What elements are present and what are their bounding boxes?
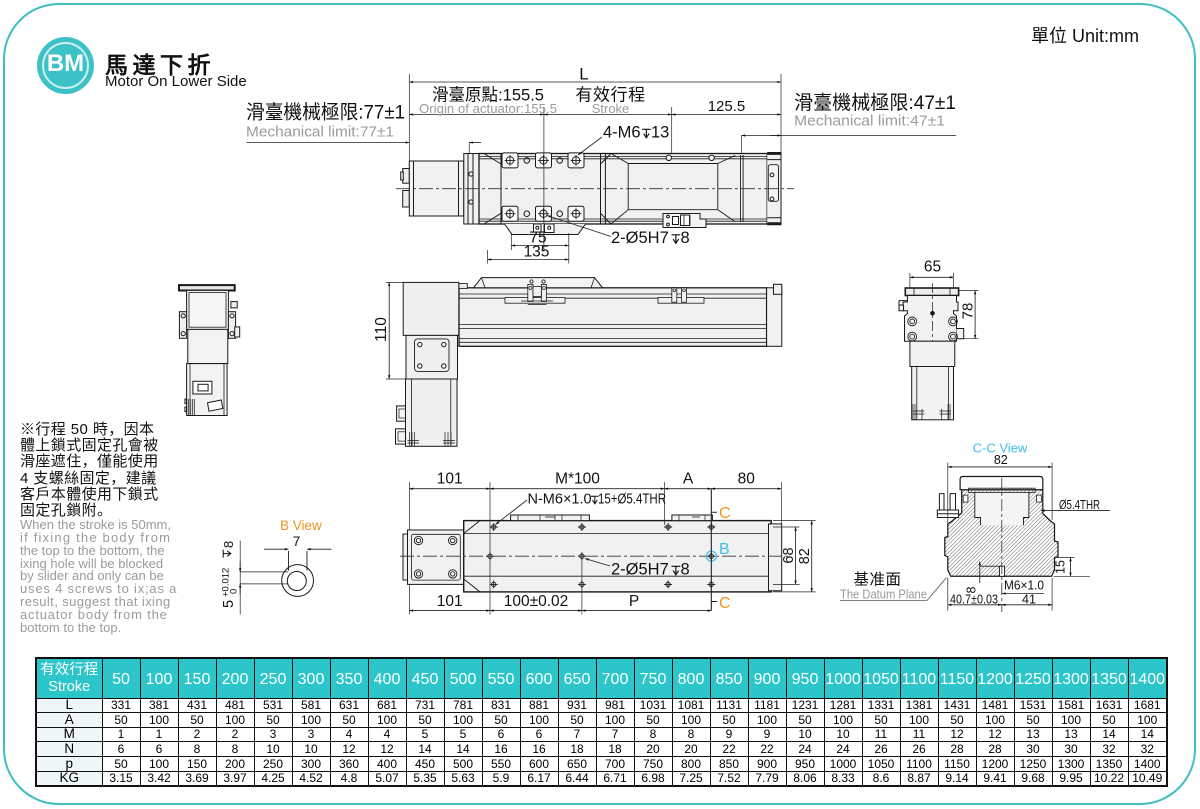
svg-text:B View: B View xyxy=(280,518,322,533)
svg-text:2-Ø5H7: 2-Ø5H7 xyxy=(611,561,669,579)
svg-text:2-Ø5H7: 2-Ø5H7 xyxy=(611,229,669,247)
svg-text:65: 65 xyxy=(924,259,941,276)
svg-text:4-M6: 4-M6 xyxy=(603,124,641,142)
svg-text:100±0.02: 100±0.02 xyxy=(504,593,569,610)
svg-text:The Datum Plane: The Datum Plane xyxy=(840,588,927,602)
svg-text:7: 7 xyxy=(293,534,301,549)
svg-text:13: 13 xyxy=(651,124,669,142)
svg-text:8: 8 xyxy=(221,541,236,548)
svg-text:82: 82 xyxy=(994,453,1008,467)
svg-text:0: 0 xyxy=(229,589,240,594)
svg-text:15: 15 xyxy=(1054,560,1068,574)
svg-text:N-M6×1.0: N-M6×1.0 xyxy=(528,492,592,508)
svg-text:Mechanical limit:77±1: Mechanical limit:77±1 xyxy=(246,125,394,141)
svg-text:5: 5 xyxy=(221,600,237,608)
svg-text:82: 82 xyxy=(797,548,813,564)
svg-text:L: L xyxy=(579,65,588,84)
svg-text:15+Ø5.4THR: 15+Ø5.4THR xyxy=(598,492,666,508)
svg-text:101: 101 xyxy=(437,593,463,610)
svg-text:C: C xyxy=(719,595,731,612)
svg-text:80: 80 xyxy=(738,471,756,488)
svg-text:Stroke: Stroke xyxy=(592,101,630,116)
svg-text:M6×1.0: M6×1.0 xyxy=(1004,579,1044,593)
svg-text:滑臺機械極限:77±1: 滑臺機械極限:77±1 xyxy=(246,102,405,124)
svg-text:8: 8 xyxy=(681,561,690,579)
svg-text:P: P xyxy=(629,593,639,610)
svg-text:135: 135 xyxy=(524,244,550,261)
svg-text:40.7±0.03: 40.7±0.03 xyxy=(950,592,998,606)
svg-text:125.5: 125.5 xyxy=(708,98,746,115)
svg-text:A: A xyxy=(683,471,694,488)
svg-text:41: 41 xyxy=(1022,592,1036,606)
svg-text:B: B xyxy=(719,541,730,558)
svg-text:M*100: M*100 xyxy=(555,471,600,488)
svg-text:Origin of actuator:155.5: Origin of actuator:155.5 xyxy=(419,101,557,116)
svg-text:Ø5.4THR: Ø5.4THR xyxy=(1059,498,1100,512)
svg-text:滑臺機械極限:47±1: 滑臺機械極限:47±1 xyxy=(794,92,956,114)
svg-text:78: 78 xyxy=(960,303,977,320)
svg-text:68: 68 xyxy=(781,547,797,563)
svg-text:C: C xyxy=(719,505,731,522)
svg-text:110: 110 xyxy=(373,317,390,342)
svg-text:基准面: 基准面 xyxy=(854,571,902,589)
svg-text:8: 8 xyxy=(681,229,690,247)
svg-text:Mechanical limit:47±1: Mechanical limit:47±1 xyxy=(794,114,945,130)
svg-text:101: 101 xyxy=(437,471,463,488)
